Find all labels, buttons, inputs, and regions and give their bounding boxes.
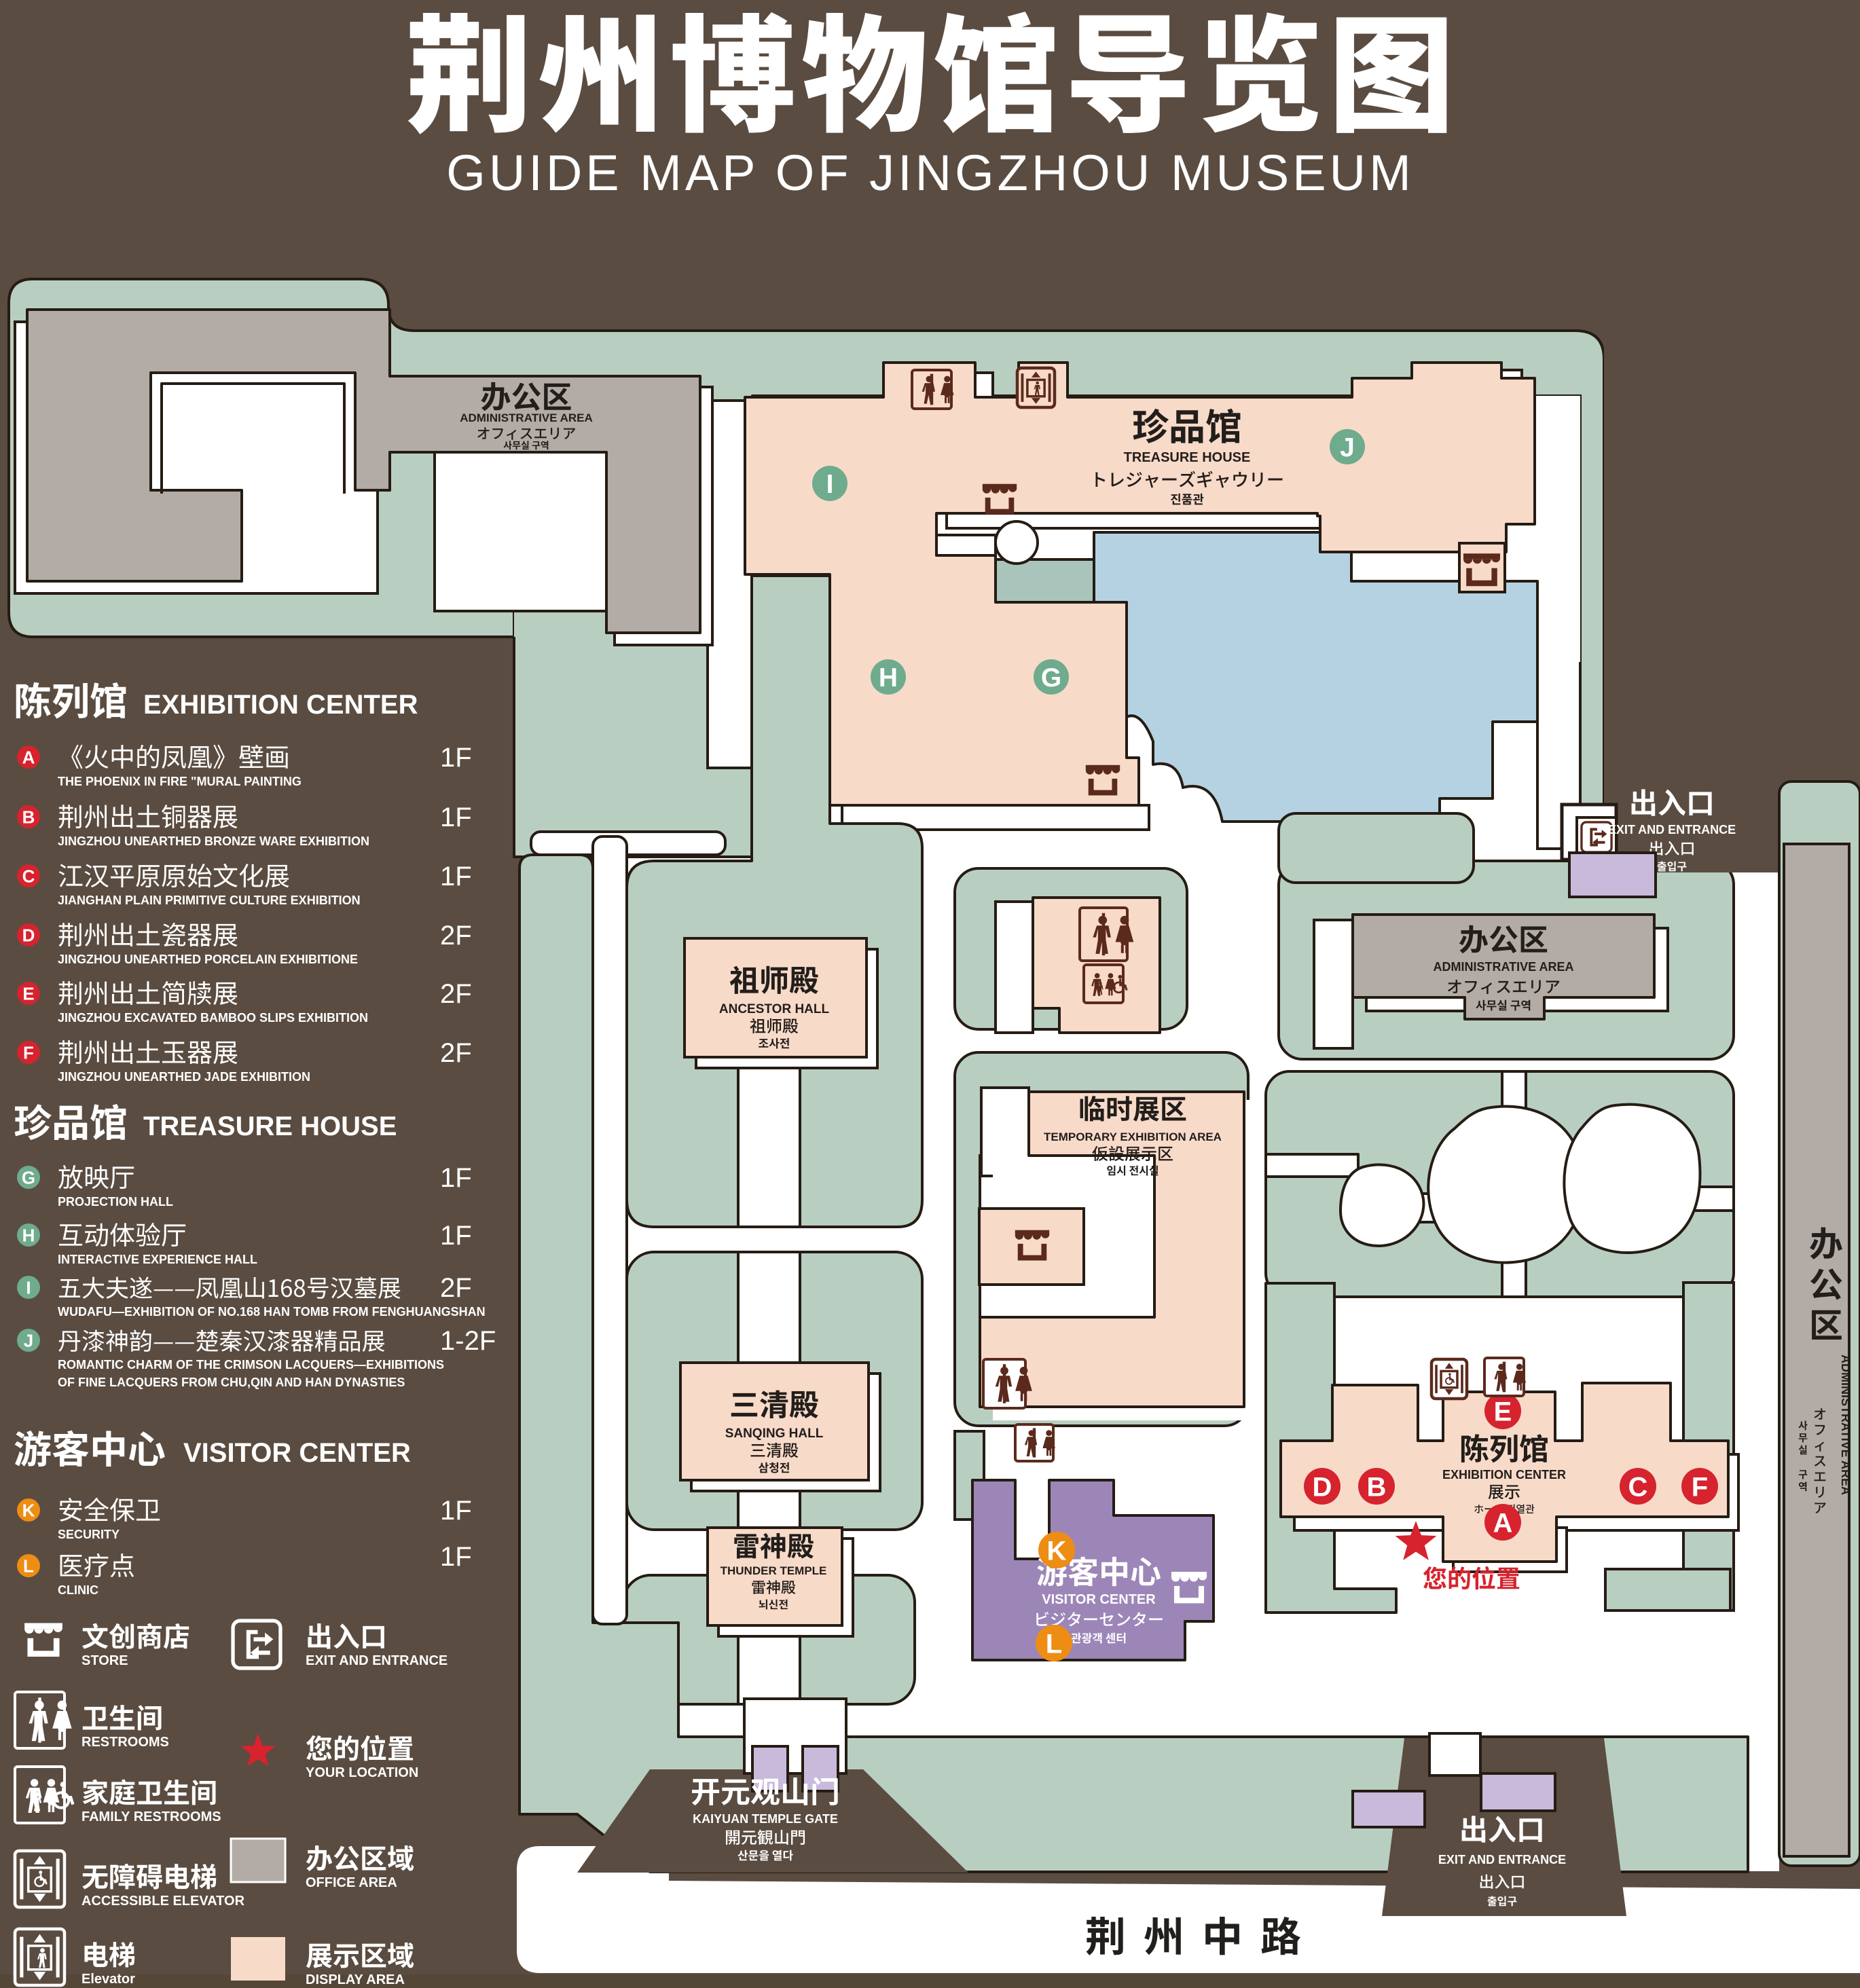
svg-text:PROJECTION HALL: PROJECTION HALL	[58, 1195, 173, 1209]
svg-text:YOUR LOCATION: YOUR LOCATION	[306, 1765, 418, 1780]
svg-text:SANQING HALL: SANQING HALL	[725, 1426, 824, 1441]
svg-text:2F: 2F	[440, 1273, 472, 1303]
svg-text:RESTROOMS: RESTROOMS	[81, 1735, 169, 1750]
svg-text:1F: 1F	[440, 1221, 472, 1251]
svg-text:STORE: STORE	[81, 1653, 128, 1668]
svg-text:JINGZHOU UNEARTHED PORCELAIN E: JINGZHOU UNEARTHED PORCELAIN EXHIBITIONE	[58, 953, 358, 966]
svg-text:ADMINISTRATIVE AREA: ADMINISTRATIVE AREA	[460, 411, 593, 424]
svg-text:L: L	[23, 1556, 34, 1576]
svg-text:EXIT AND ENTRANCE: EXIT AND ENTRANCE	[1608, 823, 1736, 836]
svg-text:F: F	[23, 1042, 34, 1063]
svg-text:INTERACTIVE EXPERIENCE HALL: INTERACTIVE EXPERIENCE HALL	[58, 1253, 257, 1266]
svg-text:G: G	[22, 1167, 35, 1188]
svg-text:1F: 1F	[440, 1163, 472, 1193]
svg-text:1F: 1F	[440, 743, 472, 773]
svg-text:J: J	[24, 1330, 33, 1350]
svg-text:Elevator: Elevator	[81, 1972, 135, 1987]
svg-text:JIANGHAN PLAIN PRIMITIVE CULTU: JIANGHAN PLAIN PRIMITIVE CULTURE EXHIBIT…	[58, 894, 361, 907]
svg-text:2F: 2F	[440, 921, 472, 951]
svg-text:K: K	[22, 1500, 35, 1520]
svg-text:1-2F: 1-2F	[440, 1326, 496, 1356]
svg-text:I: I	[26, 1277, 31, 1297]
svg-text:F: F	[1692, 1472, 1708, 1502]
svg-text:C: C	[1628, 1472, 1648, 1502]
svg-text:ADMINISTRATIVE AREA: ADMINISTRATIVE AREA	[1434, 960, 1574, 974]
svg-text:K: K	[1047, 1536, 1067, 1566]
svg-text:EXHIBITION CENTER: EXHIBITION CENTER	[1442, 1468, 1566, 1481]
svg-text:2F: 2F	[440, 1038, 472, 1068]
svg-text:E: E	[1494, 1397, 1512, 1426]
svg-text:DISPLAY AREA: DISPLAY AREA	[306, 1972, 405, 1987]
svg-text:TREASURE HOUSE: TREASURE HOUSE	[143, 1111, 397, 1141]
svg-text:GUIDE MAP OF JINGZHOU MUSEUM: GUIDE MAP OF JINGZHOU MUSEUM	[446, 145, 1414, 201]
svg-text:WUDAFU—EXHIBITION OF NO.168 HA: WUDAFU—EXHIBITION OF NO.168 HAN TOMB FRO…	[58, 1305, 486, 1319]
svg-text:OFFICE AREA: OFFICE AREA	[306, 1875, 397, 1890]
svg-text:D: D	[22, 925, 35, 945]
svg-text:C: C	[22, 866, 35, 886]
svg-text:E: E	[22, 983, 34, 1004]
svg-text:1F: 1F	[440, 803, 472, 832]
svg-text:CLINIC: CLINIC	[58, 1583, 98, 1597]
svg-text:L: L	[1046, 1629, 1062, 1659]
svg-text:1F: 1F	[440, 862, 472, 891]
svg-text:JINGZHOU EXCAVATED BAMBOO SLIP: JINGZHOU EXCAVATED BAMBOO SLIPS EXHIBITI…	[58, 1011, 368, 1025]
svg-text:JINGZHOU UNEARTHED JADE EXHIBI: JINGZHOU UNEARTHED JADE EXHIBITION	[58, 1070, 310, 1084]
svg-text:H: H	[879, 663, 898, 693]
svg-text:EXIT AND ENTRANCE: EXIT AND ENTRANCE	[1438, 1853, 1566, 1866]
svg-text:B: B	[22, 807, 35, 827]
svg-text:OF FINE LACQUERS FROM CHU,QIN: OF FINE LACQUERS FROM CHU,QIN AND HAN DY…	[58, 1376, 405, 1389]
svg-text:KAIYUAN TEMPLE GATE: KAIYUAN TEMPLE GATE	[693, 1812, 838, 1826]
svg-text:A: A	[1493, 1508, 1513, 1538]
svg-text:J: J	[1340, 433, 1355, 462]
svg-text:TEMPORARY EXHIBITION AREA: TEMPORARY EXHIBITION AREA	[1044, 1130, 1222, 1143]
svg-text:ADMINISTRATIVE AREA: ADMINISTRATIVE AREA	[1839, 1355, 1853, 1495]
svg-text:D: D	[1313, 1472, 1332, 1502]
svg-text:ROMANTIC CHARM OF THE CRIMSON: ROMANTIC CHARM OF THE CRIMSON LACQUERS—E…	[58, 1358, 444, 1372]
svg-text:THUNDER TEMPLE: THUNDER TEMPLE	[721, 1564, 827, 1577]
svg-text:I: I	[826, 470, 834, 499]
svg-text:TREASURE HOUSE: TREASURE HOUSE	[1124, 450, 1251, 465]
svg-text:FAMILY RESTROOMS: FAMILY RESTROOMS	[81, 1809, 221, 1824]
svg-text:ACCESSIBLE ELEVATOR: ACCESSIBLE ELEVATOR	[81, 1894, 245, 1909]
svg-text:SECURITY: SECURITY	[58, 1528, 120, 1541]
svg-text:A: A	[22, 747, 35, 767]
svg-text:H: H	[22, 1225, 35, 1245]
svg-text:2F: 2F	[440, 979, 472, 1009]
svg-text:1F: 1F	[440, 1496, 472, 1526]
svg-text:ANCESTOR HALL: ANCESTOR HALL	[719, 1002, 830, 1016]
svg-text:EXHIBITION CENTER: EXHIBITION CENTER	[143, 690, 418, 720]
svg-text:1F: 1F	[440, 1542, 472, 1572]
svg-text:THE PHOENIX IN FIRE "MURAL PAI: THE PHOENIX IN FIRE "MURAL PAINTING	[58, 775, 302, 788]
svg-text:G: G	[1041, 663, 1061, 693]
svg-text:EXIT AND ENTRANCE: EXIT AND ENTRANCE	[306, 1653, 448, 1668]
svg-text:JINGZHOU UNEARTHED BRONZE WARE: JINGZHOU UNEARTHED BRONZE WARE EXHIBITIO…	[58, 834, 369, 848]
svg-text:VISITOR CENTER: VISITOR CENTER	[183, 1438, 411, 1468]
svg-text:B: B	[1367, 1472, 1387, 1502]
svg-text:VISITOR CENTER: VISITOR CENTER	[1042, 1592, 1156, 1607]
